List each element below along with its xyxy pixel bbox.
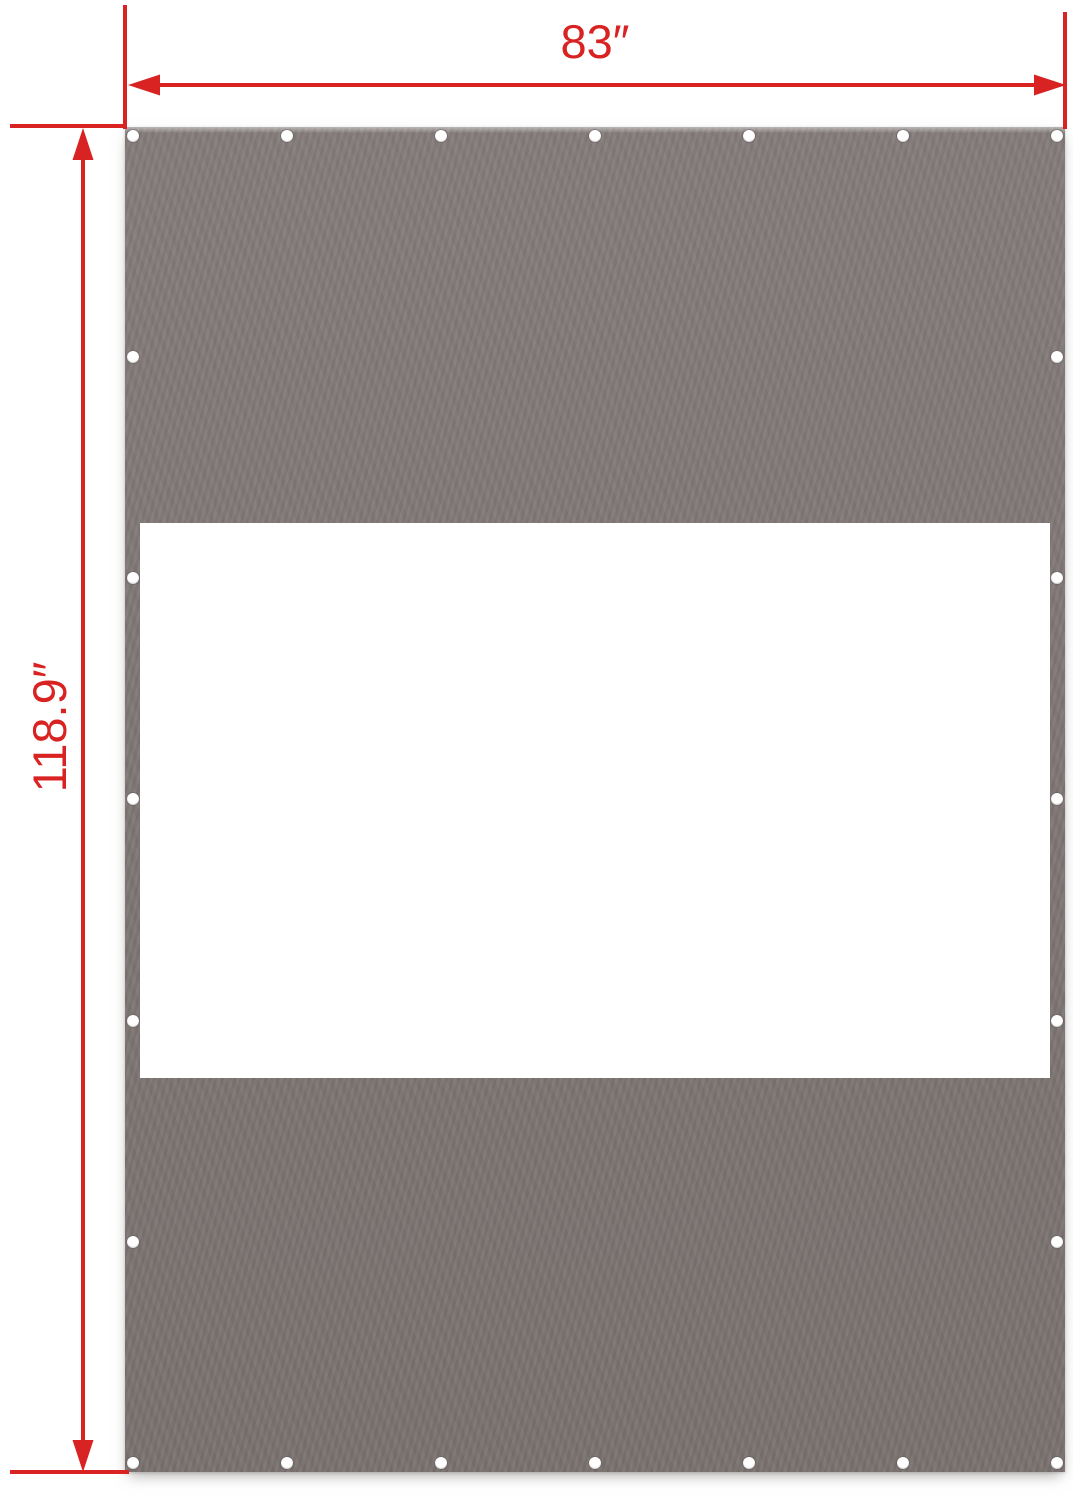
grommet — [1051, 1236, 1063, 1248]
width-dimension-label: 83″ — [495, 14, 695, 69]
grommet — [127, 572, 139, 584]
grommet — [435, 130, 447, 142]
grommet — [127, 130, 139, 142]
grommet — [281, 1457, 293, 1469]
grommet — [897, 1457, 909, 1469]
height-arrow-top-icon — [73, 128, 94, 160]
grommet — [743, 130, 755, 142]
grommet — [1051, 130, 1063, 142]
grommet — [589, 130, 601, 142]
height-arrow-bottom-icon — [73, 1440, 94, 1472]
grommet — [435, 1457, 447, 1469]
grommet — [127, 793, 139, 805]
grommet — [127, 1015, 139, 1027]
grommet — [743, 1457, 755, 1469]
tarp-panel — [125, 127, 1065, 1472]
width-arrow-left-icon — [128, 75, 160, 96]
grommet — [127, 1457, 139, 1469]
grommet — [1051, 572, 1063, 584]
grommet — [589, 1457, 601, 1469]
width-arrow-right-icon — [1034, 75, 1066, 96]
product-dimension-diagram: 83″ 118.9″ — [0, 0, 1073, 1500]
height-dimension-label: 118.9″ — [20, 617, 80, 837]
grommet — [281, 130, 293, 142]
grommet — [1051, 793, 1063, 805]
grommet — [127, 351, 139, 363]
grommet — [1051, 1457, 1063, 1469]
grommet — [897, 130, 909, 142]
grommet — [1051, 351, 1063, 363]
window-panel — [140, 523, 1050, 1078]
grommet — [127, 1236, 139, 1248]
grommet — [1051, 1015, 1063, 1027]
